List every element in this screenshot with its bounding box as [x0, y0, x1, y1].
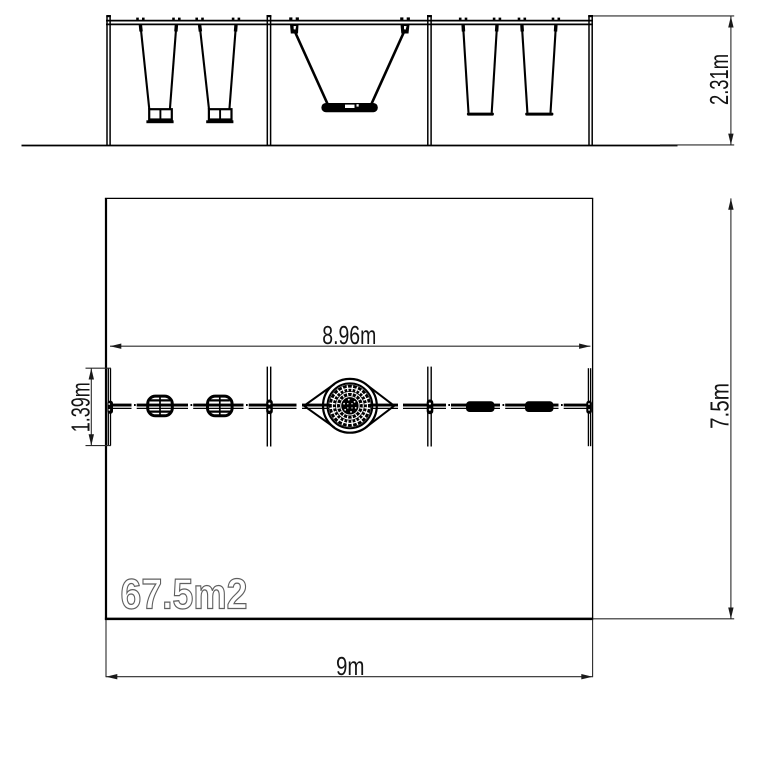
svg-text:9m: 9m	[336, 651, 365, 681]
svg-text:7.5m: 7.5m	[705, 383, 735, 429]
svg-text:2.31m: 2.31m	[704, 54, 734, 105]
svg-text:1.39m: 1.39m	[66, 382, 96, 432]
svg-text:67.5m2: 67.5m2	[121, 570, 248, 618]
svg-text:8.96m: 8.96m	[322, 320, 376, 350]
